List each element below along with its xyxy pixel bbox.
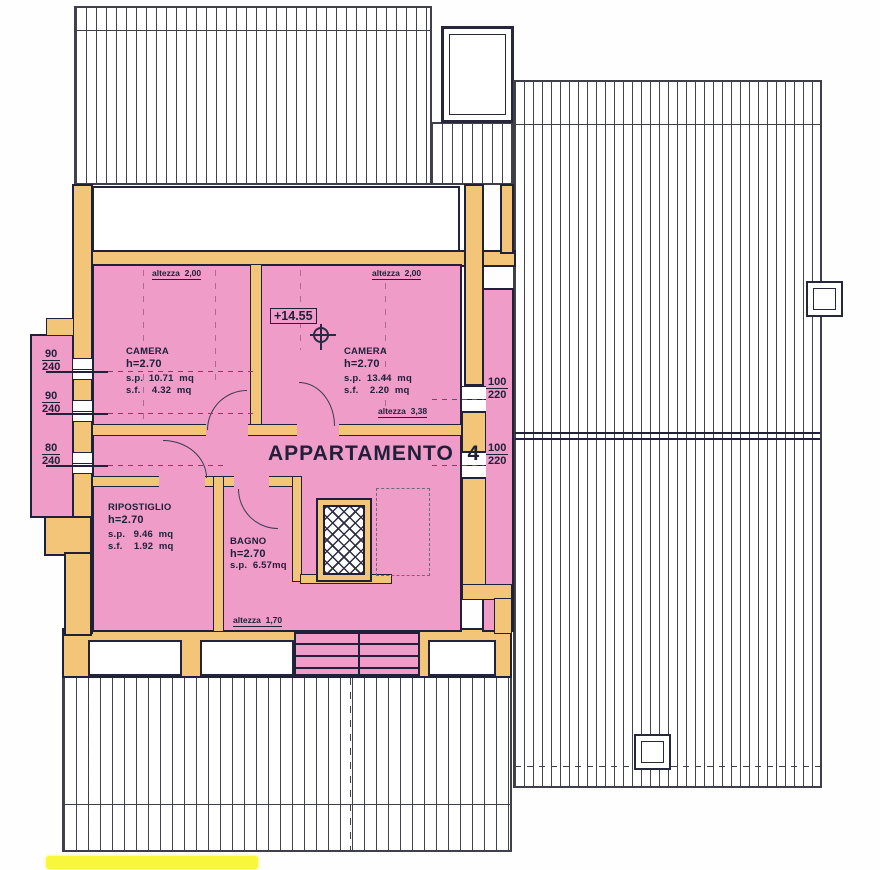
ceiling-line [143, 270, 144, 420]
wall-left-lower [64, 552, 92, 636]
roof-right-ridge-line-a [515, 432, 820, 434]
stair-tread [296, 655, 418, 657]
dim-right-1-den: 220 [486, 389, 508, 401]
room-camera2-label: CAMERA h=2.70 s.p. 13.44 mq s.f. 2.20 mq [344, 346, 412, 397]
staircase [294, 632, 420, 676]
window-left-1 [73, 358, 92, 380]
yellow-highlight-mark [46, 856, 258, 869]
shaft [316, 498, 372, 582]
roof-bottom [62, 676, 512, 852]
roof-eave-line [76, 30, 430, 31]
dim-left-2-num: 90 [42, 390, 60, 403]
roof-bottom-dashed-a [88, 678, 89, 850]
dim-right-1: 100 220 [486, 376, 508, 401]
attic-low-strip [92, 186, 460, 252]
bagno-sp: s.p. 6.57mq [230, 560, 287, 572]
partition-hall-top [92, 424, 462, 436]
wall-right-stub [500, 184, 514, 254]
wall-right-jog-v [494, 598, 512, 634]
camera2-name: CAMERA [344, 346, 412, 358]
ripostiglio-height: h=2.70 [108, 514, 174, 526]
window-left-2 [73, 400, 92, 422]
camera2-sf: s.f. 2.20 mq [344, 385, 412, 397]
dim-right-2-den: 220 [486, 455, 508, 467]
dim-left-1-den: 240 [42, 361, 60, 373]
ceiling-line [215, 270, 216, 380]
apartment-title: APPARTAMENTO 4 [268, 442, 480, 466]
camera1-sf: s.f. 4.32 mq [126, 385, 194, 397]
lower-dormer-b [200, 640, 294, 676]
chimney-right-lower-inner [641, 741, 664, 763]
roof-right-eave-line [515, 124, 820, 125]
chimney-right-lower [634, 734, 671, 770]
roof-right [513, 80, 822, 788]
camera1-sp: s.p. 10.71 mq [126, 373, 194, 385]
dim-right-2: 100 220 [486, 442, 508, 467]
camera1-name: CAMERA [126, 346, 194, 358]
roof-bottom-eave-line [64, 804, 510, 805]
height-label-top-right: altezza 2,00 [372, 268, 421, 280]
partition-cameras [250, 264, 262, 434]
dim-leader-left-3-ext [108, 465, 228, 466]
height-label-bottom: altezza 1,70 [233, 615, 282, 627]
skylight-inner [449, 34, 506, 115]
stair-tread [296, 667, 418, 669]
door-opening-bagno [234, 474, 269, 489]
dim-left-1-num: 90 [42, 348, 60, 361]
ripostiglio-sp: s.p. 9.46 mq [108, 529, 174, 541]
lower-dormer-a [88, 640, 182, 676]
dim-left-3-den: 240 [42, 455, 60, 467]
elevation-marker: +14.55 [270, 308, 317, 324]
dim-left-2-den: 240 [42, 403, 60, 415]
wall-right-lower [462, 478, 486, 590]
room-bagno-label: BAGNO h=2.70 s.p. 6.57mq [230, 536, 287, 572]
roof-right-ridge-line-b [515, 438, 820, 440]
dashed-projection-rect [376, 488, 430, 576]
benchmark-crosshair-icon [313, 327, 329, 343]
roof-top-center [432, 122, 513, 185]
dim-leader-left-2-ext [108, 413, 258, 414]
room-ripostiglio-label: RIPOSTIGLIO h=2.70 s.p. 9.46 mq s.f. 1.9… [108, 502, 174, 553]
dim-left-2: 90 240 [42, 390, 60, 415]
height-label-top-left: altezza 2,00 [152, 268, 201, 280]
stair-tread [296, 643, 418, 645]
skylight-box-top [441, 26, 514, 123]
dim-left-3-num: 80 [42, 442, 60, 455]
ripostiglio-sf: s.f. 1.92 mq [108, 541, 174, 553]
dim-right-1-num: 100 [486, 376, 508, 389]
dim-left-1: 90 240 [42, 348, 60, 373]
dim-right-2-num: 100 [486, 442, 508, 455]
camera2-height: h=2.70 [344, 358, 412, 370]
window-left-3 [73, 452, 92, 474]
shaft-hatch [323, 505, 365, 575]
chimney-right-edge-inner [813, 288, 836, 310]
dim-left-3: 80 240 [42, 442, 60, 467]
camera2-sp: s.p. 13.44 mq [344, 373, 412, 385]
left-balcony-cap [46, 318, 74, 336]
floor-plan: altezza 2,00 altezza 2,00 altezza 3,38 a… [0, 0, 880, 870]
wall-right-upper [464, 184, 484, 386]
bagno-height: h=2.70 [230, 548, 287, 560]
lower-dormer-c [428, 640, 496, 676]
wall-left-lower-block [44, 516, 92, 556]
height-label-mid: altezza 3,38 [378, 406, 427, 418]
chimney-right-edge [806, 281, 843, 317]
partition-ripostiglio-bagno [213, 476, 224, 632]
dim-leader-right-1 [432, 399, 484, 400]
camera1-height: h=2.70 [126, 358, 194, 370]
ripostiglio-name: RIPOSTIGLIO [108, 502, 174, 514]
roof-bottom-dashed-b [350, 678, 351, 850]
bagno-name: BAGNO [230, 536, 287, 548]
partition-shaft-left [292, 476, 302, 582]
roof-top-left [74, 6, 432, 185]
room-camera1-label: CAMERA h=2.70 s.p. 10.71 mq s.f. 4.32 mq [126, 346, 194, 397]
